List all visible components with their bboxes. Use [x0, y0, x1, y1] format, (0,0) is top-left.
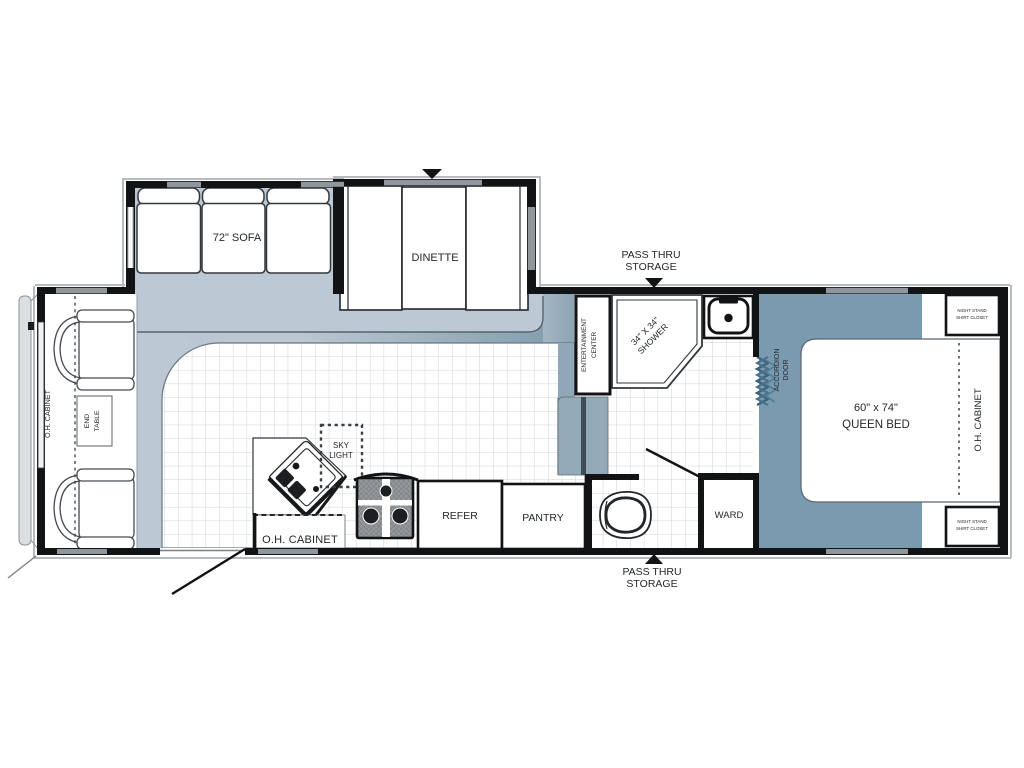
svg-text:72" SOFA: 72" SOFA — [213, 232, 262, 244]
svg-text:NIGHT STAND: NIGHT STAND — [957, 308, 986, 313]
svg-text:QUEEN BED: QUEEN BED — [842, 419, 910, 431]
svg-text:O.H. CABINET: O.H. CABINET — [262, 534, 338, 546]
svg-text:TABLE: TABLE — [94, 410, 101, 431]
svg-text:REFER: REFER — [442, 510, 478, 522]
svg-text:SHIRT CLOSET: SHIRT CLOSET — [956, 315, 988, 320]
svg-text:SHIRT CLOSET: SHIRT CLOSET — [956, 526, 988, 531]
svg-text:PASS THRU: PASS THRU — [622, 566, 681, 578]
svg-text:ENTERTAINMENT: ENTERTAINMENT — [581, 318, 588, 372]
svg-text:PASS THRU: PASS THRU — [621, 249, 680, 261]
svg-text:CENTER: CENTER — [591, 331, 598, 358]
svg-text:NIGHT STAND: NIGHT STAND — [957, 519, 986, 524]
svg-text:ACCORDION: ACCORDION — [774, 349, 781, 392]
svg-text:STORAGE: STORAGE — [626, 578, 677, 590]
svg-text:END: END — [84, 414, 91, 428]
svg-text:SKY: SKY — [333, 441, 350, 450]
svg-text:O.H. CABINET: O.H. CABINET — [973, 388, 984, 452]
svg-text:DOOR: DOOR — [783, 360, 790, 381]
svg-text:STORAGE: STORAGE — [625, 261, 676, 273]
svg-text:PANTRY: PANTRY — [522, 512, 564, 524]
svg-text:WARD: WARD — [715, 510, 744, 521]
svg-text:60" x 74": 60" x 74" — [854, 402, 898, 414]
svg-text:LIGHT: LIGHT — [329, 451, 353, 460]
svg-text:DINETTE: DINETTE — [411, 252, 458, 264]
